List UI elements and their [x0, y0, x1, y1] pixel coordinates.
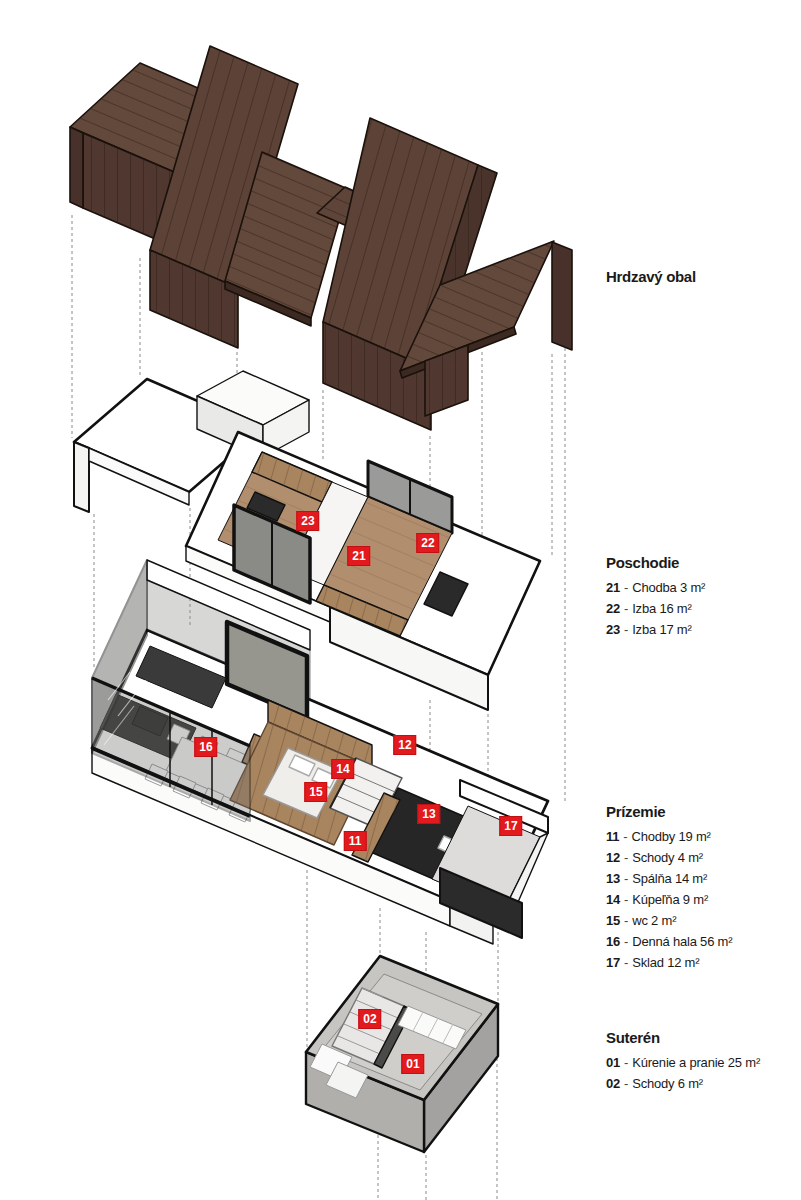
- legend-heading: Poschodie: [606, 554, 796, 571]
- room-tag-02: 02: [358, 1009, 381, 1029]
- room-tag-01: 01: [401, 1054, 424, 1074]
- legend-item: 12-Schody 4 m²: [606, 847, 796, 868]
- legend-item: 13-Spálňa 14 m²: [606, 868, 796, 889]
- room-tag-14: 14: [331, 759, 354, 779]
- room-tag-21: 21: [347, 546, 370, 566]
- legend-item: 15-wc 2 m²: [606, 910, 796, 931]
- room-tag-22: 22: [416, 533, 439, 553]
- legend-item: 16-Denná hala 56 m²: [606, 931, 796, 952]
- legend-item: 11-Chodby 19 m²: [606, 826, 796, 847]
- legend-item: 21-Chodba 3 m²: [606, 577, 796, 598]
- legend-heading: Prízemie: [606, 803, 796, 820]
- legend-item: 02-Schody 6 m²: [606, 1073, 796, 1094]
- legend-item: 17-Sklad 12 m²: [606, 952, 796, 973]
- roof-shell: [70, 46, 572, 430]
- legend-item: 01-Kúrenie a pranie 25 m²: [606, 1052, 796, 1073]
- room-tag-11: 11: [344, 831, 367, 851]
- room-tag-15: 15: [304, 782, 327, 802]
- roof-right-flap: [552, 242, 572, 350]
- legend-heading: Hrdzavý obal: [606, 268, 796, 285]
- legend-item: 23-Izba 17 m²: [606, 619, 796, 640]
- legend-item: 22-Izba 16 m²: [606, 598, 796, 619]
- legend-item: 14-Kúpeľňa 9 m²: [606, 889, 796, 910]
- legend-hrdzavy-obal: Hrdzavý obal: [606, 268, 796, 291]
- room-tag-13: 13: [417, 804, 440, 824]
- legend-poschodie: Poschodie 21-Chodba 3 m² 22-Izba 16 m² 2…: [606, 554, 796, 640]
- room-tag-23: 23: [296, 511, 319, 531]
- legend-suteren: Suterén 01-Kúrenie a pranie 25 m² 02-Sch…: [606, 1029, 796, 1094]
- room-tag-12: 12: [393, 735, 416, 755]
- room-tag-17: 17: [499, 816, 522, 836]
- room-tag-16: 16: [194, 737, 217, 757]
- legend-heading: Suterén: [606, 1029, 796, 1046]
- legend-prizemie: Prízemie 11-Chodby 19 m² 12-Schody 4 m² …: [606, 803, 796, 973]
- roof-left-flap: [70, 127, 83, 208]
- blueprint-canvas: 23 21 22 16 12 14 15 13 11 17 02 01 Hrdz…: [0, 0, 801, 1200]
